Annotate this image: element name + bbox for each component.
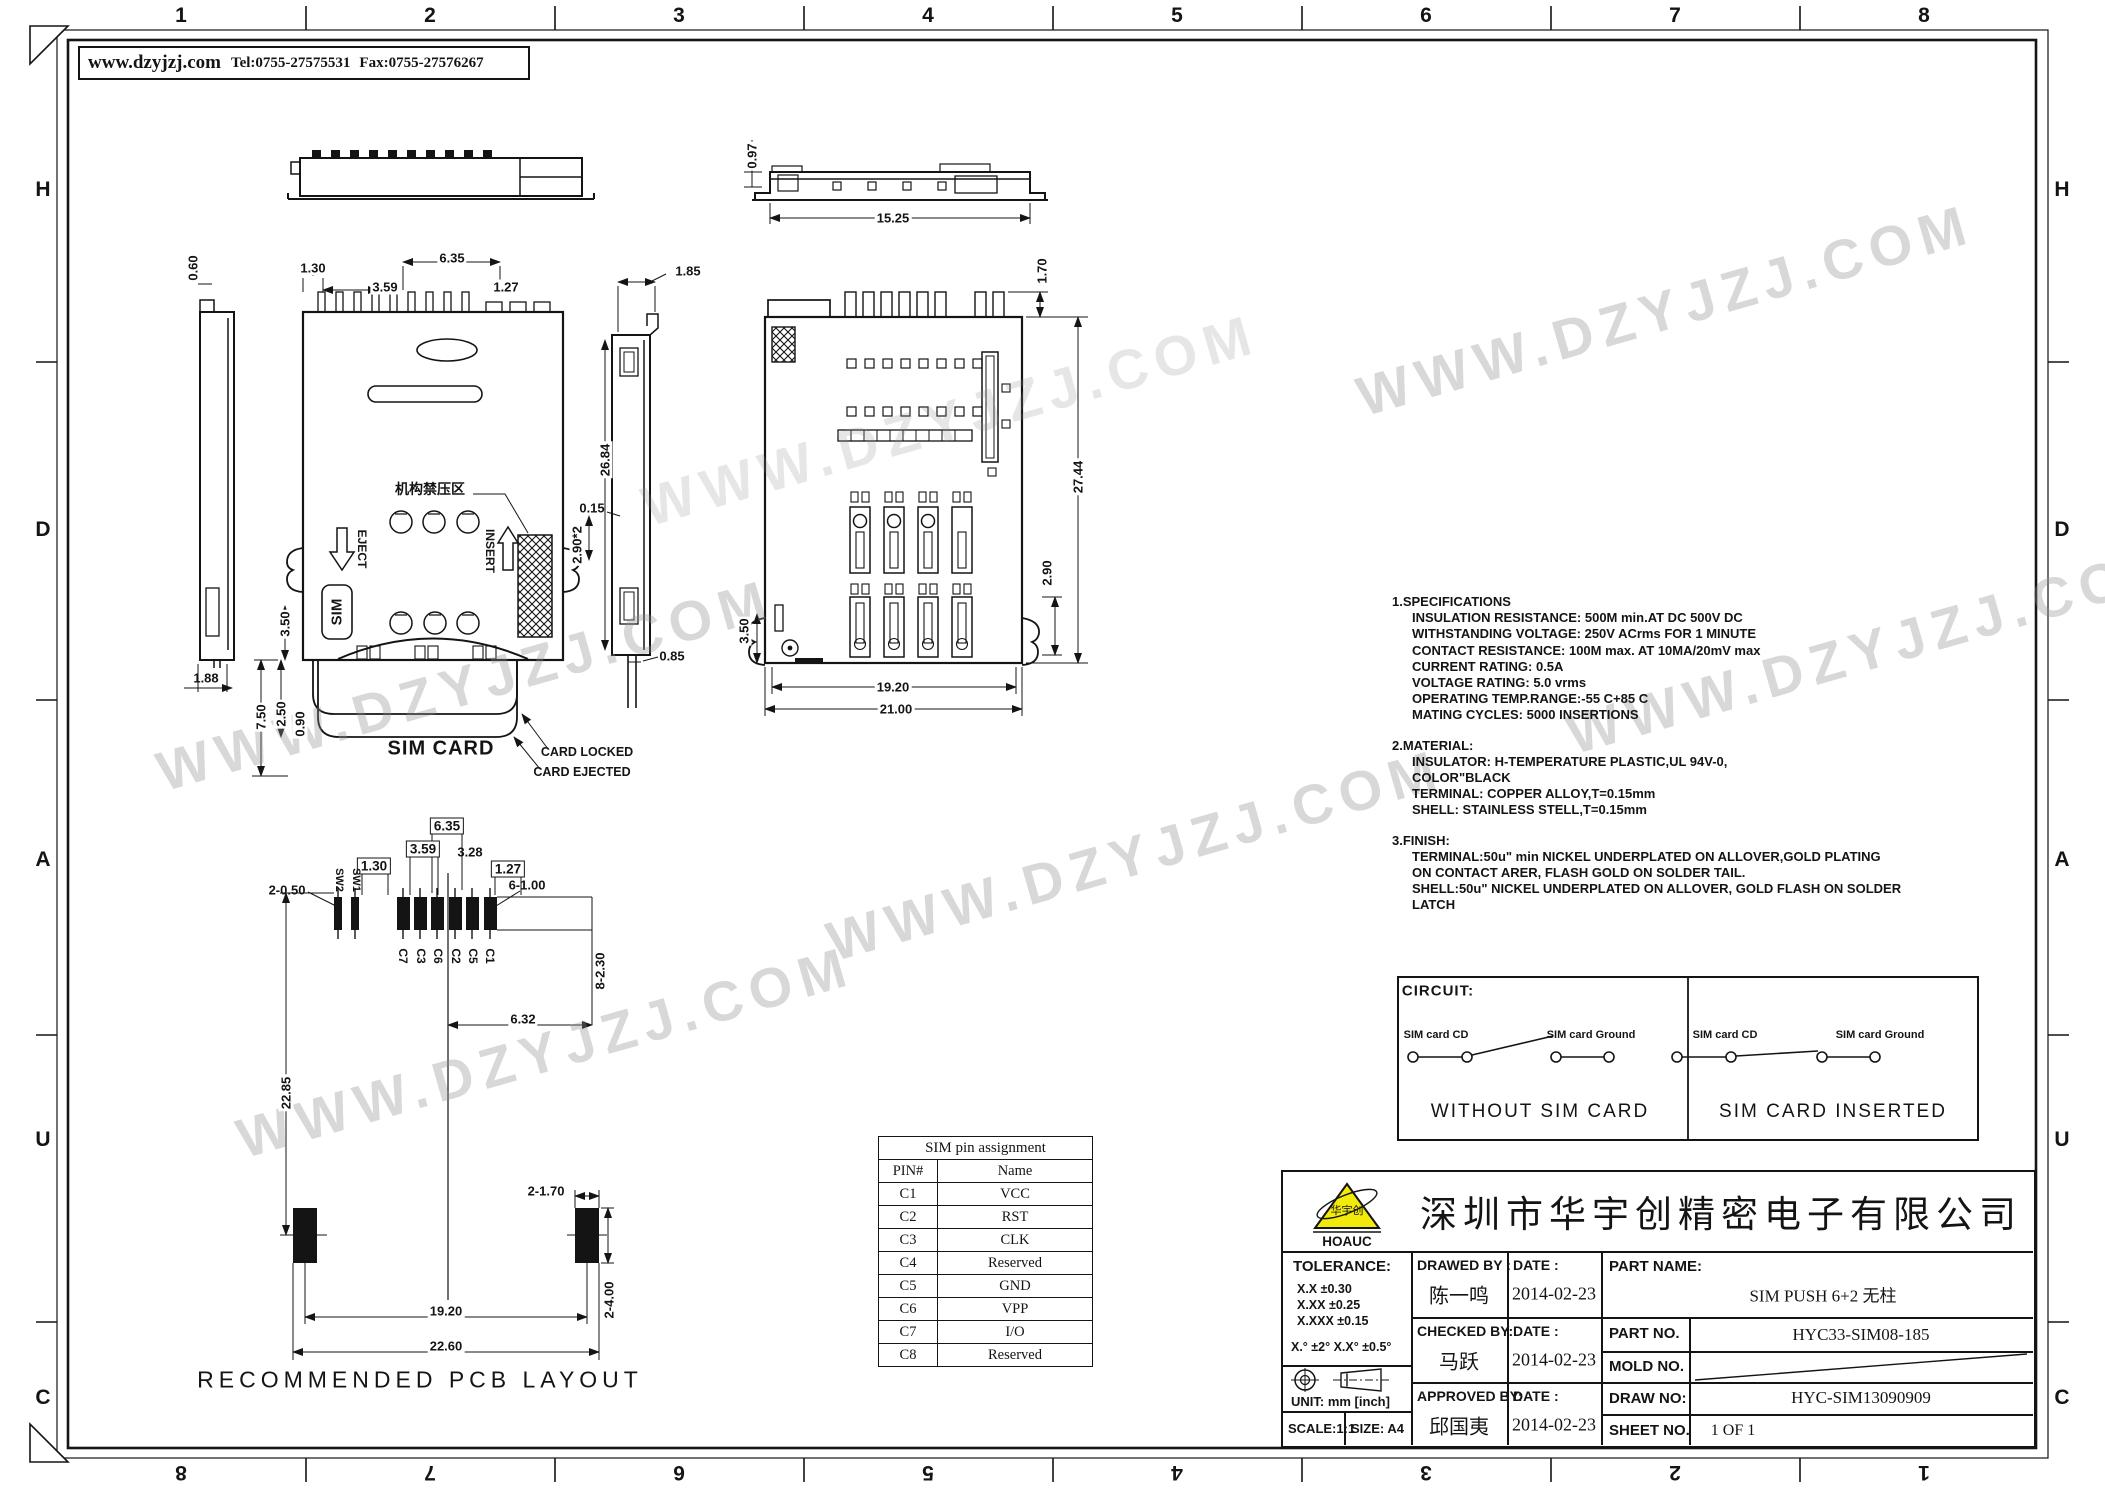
dim-ear-height-left: 3.50 [737,616,752,645]
finish-line: LATCH [1392,897,1992,913]
part-name-value: SIM PUSH 6+2 无柱 [1749,1282,1896,1307]
card-locked-label: CARD LOCKED [541,745,633,759]
dim-width-overall: 21.00 [878,702,915,717]
dim-pcb-anchor-width: 2-1.70 [526,1184,567,1199]
scale-label: SCALE:1:1 [1288,1421,1355,1436]
pin-cell: C1 [879,1183,938,1206]
dim-pcb-span-outer: 22.60 [428,1339,465,1354]
finish-line: TERMINAL:50u" min NICKEL UNDERPLATED ON … [1392,849,1992,865]
right-side-view [589,274,666,708]
dim-pcb-height: 22.85 [279,1075,294,1112]
drawed-by-label: DRAWED BY : [1417,1257,1511,1273]
circuit-title: CIRCUIT: [1402,983,1474,1000]
pin-cell: C4 [879,1252,938,1275]
date-label: DATE : [1513,1388,1559,1404]
insert-label: INSERT [483,529,497,573]
dim-width-inner: 19.20 [875,680,912,695]
pin-cell: C7 [879,1321,938,1344]
dim-pcb: 3.28 [455,845,484,860]
spec-line: WITHSTANDING VOLTAGE: 250V ACrms FOR 1 M… [1392,626,1992,642]
zone-letter-left: D [35,518,50,542]
website-url: www.dzyjzj.com [88,52,221,74]
finish-title: 3.FINISH: [1392,833,1992,849]
pin-cell: C5 [879,1275,938,1298]
bottom-view [748,292,1088,716]
drawed-by-name: 陈一鸣 [1429,1280,1489,1309]
zone-number-bottom: 6 [673,1460,685,1484]
spec-line: VOLTAGE RATING: 5.0 vrms [1392,675,1992,691]
size-label: SIZE: A4 [1351,1421,1404,1436]
drawed-date: 2014-02-23 [1512,1284,1596,1305]
sim-card-cd-label: SIM card CD [1404,1029,1469,1041]
name-cell: VPP [938,1298,1093,1321]
dim-body-height: 26.84 [598,442,613,479]
approved-by-name: 邱国夷 [1429,1411,1489,1440]
sim-pin-assignment-table: SIM pin assignment PIN# Name C1VCC C2RST… [878,1136,1093,1367]
name-col-header: Name [938,1160,1093,1183]
pad-label-c7: C7 [396,946,410,965]
mold-no-label: MOLD NO. [1609,1358,1684,1375]
pin-cell: C8 [879,1344,938,1367]
notes-block: 1.SPECIFICATIONS INSULATION RESISTANCE: … [1392,594,1992,914]
zone-number-bottom: 1 [1918,1460,1930,1484]
unit-label: UNIT: mm [inch] [1291,1394,1390,1409]
dim-hook: 0.60 [186,253,201,282]
dim-card-travel: 0.90 [293,709,308,738]
zone-letter-right: H [2054,178,2069,202]
spec-line: OPERATING TEMP.RANGE:-55 C+85 C [1392,691,1992,707]
pad-label-c3: C3 [414,946,428,965]
tolerance-title: TOLERANCE: [1293,1258,1391,1275]
dim-card-travel: 7.50 [254,702,269,731]
sim-card-label: SIM CARD [388,738,495,761]
part-no-value: HYC33-SIM08-185 [1793,1325,1930,1345]
zone-letter-right: C [2054,1386,2069,1410]
dim-pitch: 3.59 [370,280,399,295]
dim-ear-height: 2.90 [1040,558,1055,587]
spec-line: CONTACT RESISTANCE: 100M max. AT 10MA/20… [1392,643,1992,659]
engineering-drawing-sheet: WWW.DZYJZJ.COM WWW.DZYJZJ.COM WWW.DZYJZJ… [0,0,2105,1488]
zone-number-bottom: 3 [1420,1460,1432,1484]
zone-letter-left: C [35,1386,50,1410]
tolerance-angles: X.° ±2° X.X° ±0.5° [1291,1340,1391,1354]
spec-line: CURRENT RATING: 0.5A [1392,659,1992,675]
zone-number-top: 2 [424,4,436,28]
date-label: DATE : [1513,1257,1559,1273]
part-name-label: PART NAME: [1609,1258,1702,1275]
zone-number-bottom: 4 [1171,1460,1183,1484]
logo-mark-text: 华宇创 [1331,1203,1364,1217]
pin-table-title: SIM pin assignment [879,1137,1093,1160]
approved-date: 2014-02-23 [1512,1415,1596,1436]
draw-no-label: DRAW NO: [1609,1390,1687,1407]
name-cell: Reserved [938,1252,1093,1275]
date-label: DATE : [1513,1323,1559,1339]
dim-pcb-anchor-height: 2-4.00 [602,1280,617,1321]
zone-number-top: 1 [175,4,187,28]
dim-pitch: 1.27 [491,280,520,295]
table-row: C4Reserved [879,1252,1093,1275]
logo-brand-text: HOAUC [1322,1234,1372,1249]
table-row: C7I/O [879,1321,1093,1344]
sheet-no-label: SHEET NO. [1609,1422,1690,1439]
dim-pcb: 1.30 [357,858,391,875]
zone-number-top: 6 [1420,4,1432,28]
dim-slot-pitch: 2.90*2 [570,524,585,566]
name-cell: I/O [938,1321,1093,1344]
dim-pcb-pad-height: 8-2.30 [593,951,608,992]
dim-stem: 0.85 [657,649,686,664]
zone-number-bottom: 5 [922,1460,934,1484]
zone-letter-right: D [2054,518,2069,542]
pad-label-sw1: SW1 [350,866,362,894]
material-line: INSULATOR: H-TEMPERATURE PLASTIC,UL 94V-… [1392,754,1992,770]
material-line: TERMINAL: COPPER ALLOY,T=0.15mm [1392,786,1992,802]
draw-no-value: HYC-SIM13090909 [1791,1388,1931,1408]
part-no-label: PART NO. [1609,1325,1680,1342]
sim-card-ground-label: SIM card Ground [1836,1029,1925,1041]
spec-line: MATING CYCLES: 5000 INSERTIONS [1392,707,1992,723]
eject-label: EJECT [355,530,369,569]
mold-no-slash [1691,1352,2031,1382]
sim-card-inserted-caption: SIM CARD INSERTED [1719,1101,1947,1123]
pcb-caption: RECOMMENDED PCB LAYOUT [197,1367,643,1394]
dim-overall-height: 27.44 [1071,459,1086,496]
front-view [252,262,579,776]
checked-by-name: 马跃 [1439,1346,1479,1375]
zone-number-bottom: 2 [1669,1460,1681,1484]
material-line: SHELL: STAINLESS STELL,T=0.15mm [1392,802,1992,818]
contact-header: www.dzyjzj.com Tel:0755-27575531 Fax:075… [78,46,530,80]
dim-hook-right: 1.85 [673,264,702,279]
company-logo: 华宇创 HOAUC [1293,1176,1408,1249]
name-cell: RST [938,1206,1093,1229]
approved-by-label: APPROVED BY: [1417,1388,1523,1404]
projection-symbol [1289,1368,1407,1392]
dim-card-travel: 2.50 [274,699,289,728]
table-row: C3CLK [879,1229,1093,1252]
company-name: 深圳市华宇创精密电子有限公司 [1411,1172,2031,1249]
dim-pitch: 6.35 [437,251,466,266]
pad-label-c2: C2 [449,946,463,965]
table-row: C5GND [879,1275,1093,1298]
table-row: C6VPP [879,1298,1093,1321]
dim-pcb: 6.32 [508,1012,537,1027]
checked-date: 2014-02-23 [1512,1350,1596,1371]
dim-pcb-pad-width: 6-1.00 [507,878,548,893]
pad-label-c1: C1 [483,946,497,965]
dim-pin-length: 1.70 [1035,256,1050,285]
pin-cell: C2 [879,1206,938,1229]
finish-line: SHELL:50u" NICKEL UNDERPLATED ON ALLOVER… [1392,881,1992,897]
sim-marking-label: SIM [329,599,346,626]
zone-number-bottom: 7 [424,1460,436,1484]
pin-cell: C6 [879,1298,938,1321]
table-row: C2RST [879,1206,1093,1229]
fax: Fax:0755-27576267 [359,55,483,72]
zone-letter-left: H [35,178,50,202]
telephone: Tel:0755-27575531 [231,55,350,72]
card-ejected-label: CARD EJECTED [533,765,630,779]
dim-side-height: 0.97 [745,141,760,170]
spec-title: 1.SPECIFICATIONS [1392,594,1992,610]
tolerance-row: X.X ±0.30 [1297,1282,1352,1296]
dim-side-width: 15.25 [875,211,912,226]
spec-line: INSULATION RESISTANCE: 500M min.AT DC 50… [1392,610,1992,626]
top-view [288,150,594,199]
mech-no-press-label: 机构禁压区 [395,479,465,499]
tolerance-row: X.XXX ±0.15 [1297,1314,1368,1328]
zone-letter-left: U [35,1128,50,1152]
zone-number-top: 3 [673,4,685,28]
dim-pitch: 1.30 [298,261,327,276]
title-block: 华宇创 HOAUC 深圳市华宇创精密电子有限公司 TOLERANCE: X.X … [1281,1170,2036,1448]
zone-letter-right: U [2054,1128,2069,1152]
name-cell: VCC [938,1183,1093,1206]
zone-number-bottom: 8 [175,1460,187,1484]
sim-card-ground-label: SIM card Ground [1547,1029,1636,1041]
sheet-no-value: 1 OF 1 [1711,1422,1755,1440]
pin-cell: C3 [879,1229,938,1252]
material-line: COLOR"BLACK [1392,770,1992,786]
zone-number-top: 7 [1669,4,1681,28]
dim-pcb-sw-pad: 2-0.50 [267,883,308,898]
pad-label-c6: C6 [431,946,445,965]
dim-pcb: 6.35 [430,818,464,835]
zone-number-top: 5 [1171,4,1183,28]
dim-pcb-span-inner: 19.20 [428,1304,465,1319]
checked-by-label: CHECKED BY: [1417,1323,1513,1339]
finish-line: ON CONTACT ARER, FLASH GOLD ON SOLDER TA… [1392,865,1992,881]
table-row: C1VCC [879,1183,1093,1206]
dim-shell-thickness: 0.15 [577,501,606,516]
table-row: C8Reserved [879,1344,1093,1367]
left-side-view [184,284,234,692]
name-cell: GND [938,1275,1093,1298]
zone-number-top: 4 [922,4,934,28]
name-cell: CLK [938,1229,1093,1252]
material-title: 2.MATERIAL: [1392,738,1992,754]
dim-pcb: 1.27 [491,861,525,878]
zone-letter-left: A [35,848,50,872]
pin-col-header: PIN# [879,1160,938,1183]
pad-label-c5: C5 [466,946,480,965]
dim-ear: 3.50 [278,609,293,638]
name-cell: Reserved [938,1344,1093,1367]
dim-side-width-bottom: 1.88 [191,671,220,686]
dim-pcb: 3.59 [406,841,440,858]
tolerance-row: X.XX ±0.25 [1297,1298,1360,1312]
zone-number-top: 8 [1918,4,1930,28]
pcb-layout [280,832,614,1360]
without-sim-card-caption: WITHOUT SIM CARD [1431,1101,1649,1123]
sim-card-cd-label: SIM card CD [1693,1029,1758,1041]
zone-letter-right: A [2054,848,2069,872]
pad-label-sw2: SW2 [333,866,345,894]
